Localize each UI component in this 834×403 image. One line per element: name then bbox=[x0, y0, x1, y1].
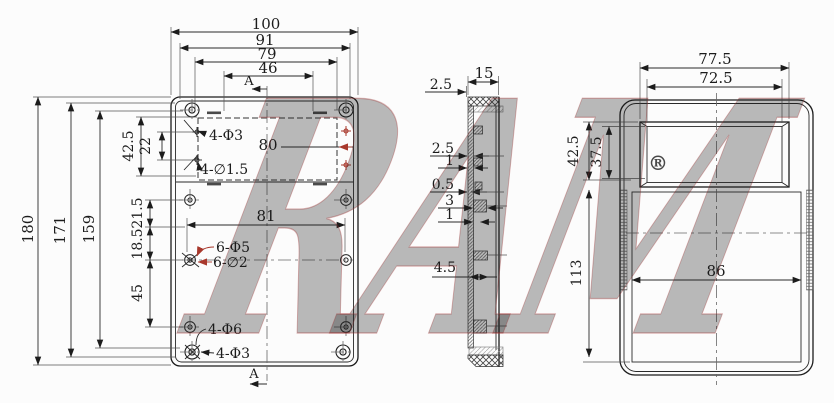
dim-outer-height: 171 bbox=[51, 216, 69, 245]
technical-drawing-page: A A 100 91 79 46 bbox=[0, 0, 834, 403]
registered-mark: ® bbox=[648, 151, 668, 175]
dim-inner-height: 159 bbox=[80, 215, 98, 244]
dim-recess-height: 42.5 bbox=[121, 130, 137, 161]
dim-overall-height: 180 bbox=[19, 215, 37, 244]
watermark: RAM ® bbox=[156, 32, 823, 403]
front-left-dimensions: 180 171 159 42.5 22 21.5 18.5 45 bbox=[19, 97, 197, 365]
dim-hole-gap: 22 bbox=[138, 137, 154, 155]
dim-top-gap: 21.5 bbox=[130, 197, 146, 228]
dim-bottom-gap: 45 bbox=[130, 284, 146, 302]
enclosure-drawing: A A 100 91 79 46 bbox=[0, 0, 834, 403]
dim-mid-gap: 18.5 bbox=[130, 228, 146, 259]
watermark-text: RAM bbox=[156, 32, 823, 403]
right-vent-ribs bbox=[807, 190, 814, 290]
